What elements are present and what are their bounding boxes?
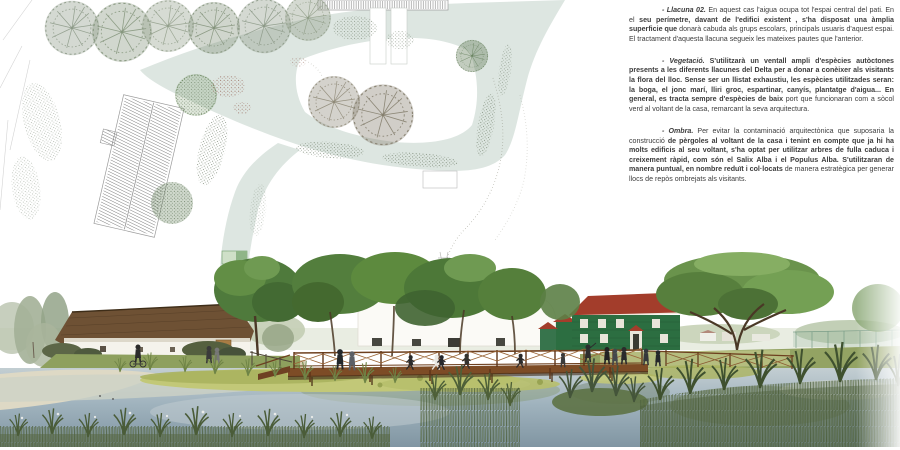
person-backpack <box>337 349 344 369</box>
presentation-page: - Llacuna 02. En aquest cas l'aigua ocup… <box>0 0 900 450</box>
right-edge-fade <box>856 250 900 450</box>
text-column: - Llacuna 02. En aquest cas l'aigua ocup… <box>629 6 894 197</box>
plan-small-structure <box>423 171 457 188</box>
paragraph-1: - Llacuna 02. En aquest cas l'aigua ocup… <box>629 6 894 44</box>
white-building-window <box>372 338 382 346</box>
paragraph-lead: - Ombra. <box>662 127 693 135</box>
paragraph-lead: - Vegetació. <box>662 57 705 65</box>
bird <box>99 395 101 397</box>
green-shed <box>540 328 556 350</box>
green-house-wing <box>556 320 574 350</box>
white-building-window <box>496 338 505 346</box>
plan-pier-1 <box>370 8 386 64</box>
site-plan-drawing <box>0 0 640 280</box>
white-building-window <box>448 338 460 347</box>
white-building-window <box>412 339 421 346</box>
bird <box>112 398 114 400</box>
paragraph-3: - Ombra. Per evitar la contaminació arqu… <box>629 127 894 185</box>
farmhouse-window <box>100 346 106 352</box>
plan-building-annex <box>100 129 117 146</box>
tree-small <box>540 284 580 320</box>
photomontage-rendering <box>0 250 900 450</box>
paragraph-lead: - Llacuna 02. <box>662 6 706 14</box>
farmhouse-window <box>170 347 175 352</box>
paragraph-2: - Vegetació. S'utilitzarà un ventall amp… <box>629 57 894 115</box>
